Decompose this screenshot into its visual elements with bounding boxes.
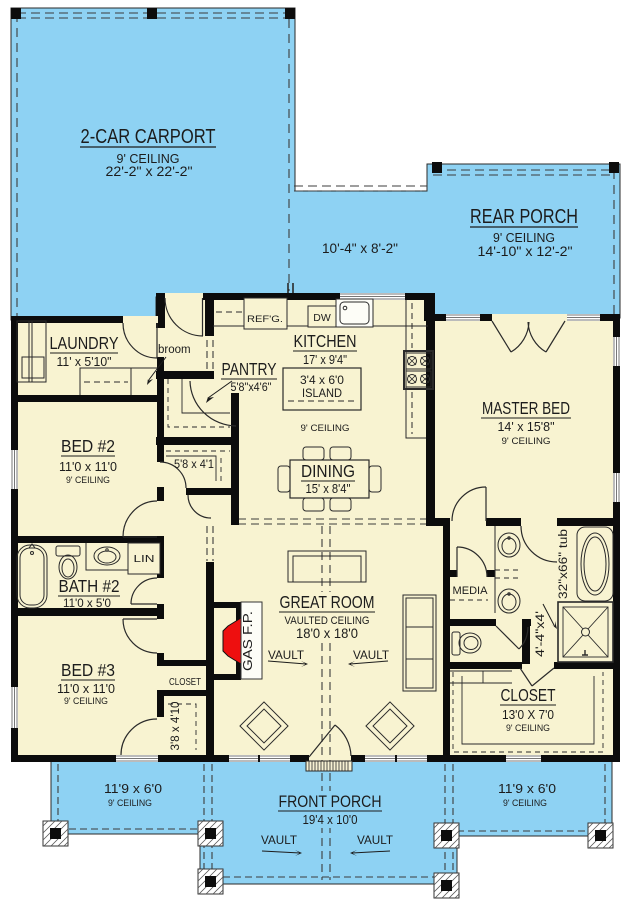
svg-text:3'8 x 4'10: 3'8 x 4'10 [170, 702, 182, 751]
svg-text:14'-10" x 12'-2": 14'-10" x 12'-2" [478, 243, 573, 259]
svg-text:GAS F.P.: GAS F.P. [241, 611, 255, 671]
svg-text:9' CEILING: 9' CEILING [108, 798, 152, 809]
svg-text:CLOSET: CLOSET [169, 676, 201, 688]
svg-text:11'9 x 6'0: 11'9 x 6'0 [104, 782, 162, 796]
svg-text:PANTRY: PANTRY [222, 359, 277, 379]
svg-text:broom: broom [158, 344, 191, 356]
svg-text:VAULT: VAULT [357, 835, 393, 847]
svg-text:18'0 x 18'0: 18'0 x 18'0 [296, 626, 358, 641]
svg-text:13'0 X 7'0: 13'0 X 7'0 [502, 708, 554, 722]
svg-text:19'4 x 10'0: 19'4 x 10'0 [303, 813, 358, 827]
svg-text:LAUNDRY: LAUNDRY [50, 333, 119, 353]
svg-text:BED #3: BED #3 [61, 660, 115, 680]
svg-text:LIN: LIN [134, 553, 155, 565]
svg-text:VAULT: VAULT [261, 835, 297, 847]
svg-text:DINING: DINING [301, 461, 355, 481]
svg-text:MASTER BED: MASTER BED [482, 398, 570, 418]
svg-text:CLOSET: CLOSET [501, 685, 556, 705]
svg-text:BED #2: BED #2 [61, 436, 115, 456]
svg-text:9' CEILING: 9' CEILING [64, 696, 108, 707]
svg-text:11'9 x 6'0: 11'9 x 6'0 [498, 782, 556, 796]
svg-text:11'0 x 5'0: 11'0 x 5'0 [63, 596, 111, 610]
svg-text:DW: DW [313, 312, 331, 324]
svg-text:10'-4" x 8'-2": 10'-4" x 8'-2" [322, 241, 398, 256]
svg-text:5'8 x 4'1: 5'8 x 4'1 [174, 459, 214, 471]
svg-text:ISLAND: ISLAND [302, 386, 342, 400]
svg-text:KITCHEN: KITCHEN [294, 331, 357, 351]
svg-text:3'4 x 6'0: 3'4 x 6'0 [300, 373, 344, 387]
svg-text:22'-2" x 22'-2": 22'-2" x 22'-2" [106, 163, 193, 179]
svg-text:FRONT PORCH: FRONT PORCH [279, 792, 382, 811]
svg-text:MEDIA: MEDIA [453, 585, 489, 597]
svg-text:17' x 9'4": 17' x 9'4" [303, 353, 347, 367]
svg-text:REAR PORCH: REAR PORCH [470, 206, 578, 228]
svg-text:11' x 5'10": 11' x 5'10" [57, 355, 112, 369]
svg-text:9' CEILING: 9' CEILING [66, 475, 110, 486]
svg-text:VAULT: VAULT [353, 650, 389, 662]
svg-text:9' CEILING: 9' CEILING [506, 723, 550, 734]
svg-text:5'8"x4'6": 5'8"x4'6" [231, 382, 272, 394]
svg-text:REF'G.: REF'G. [247, 314, 283, 325]
svg-text:GREAT ROOM: GREAT ROOM [280, 592, 375, 612]
svg-text:14' x 15'8": 14' x 15'8" [498, 420, 555, 434]
svg-text:2-CAR CARPORT: 2-CAR CARPORT [81, 126, 216, 148]
svg-text:9' CEILING: 9' CEILING [503, 798, 547, 809]
svg-text:VAULT: VAULT [268, 650, 304, 662]
svg-text:BATH #2: BATH #2 [59, 576, 120, 596]
svg-text:11'0 x 11'0: 11'0 x 11'0 [59, 460, 117, 474]
svg-text:32"x66" tub: 32"x66" tub [558, 529, 570, 599]
svg-text:9' CEILING: 9' CEILING [502, 436, 551, 447]
svg-text:15' x 8'4": 15' x 8'4" [306, 482, 351, 496]
svg-text:11'0 x 11'0: 11'0 x 11'0 [57, 682, 115, 696]
svg-text:9' CEILING: 9' CEILING [301, 423, 350, 434]
svg-text:4'-4"x4': 4'-4"x4' [535, 611, 547, 657]
